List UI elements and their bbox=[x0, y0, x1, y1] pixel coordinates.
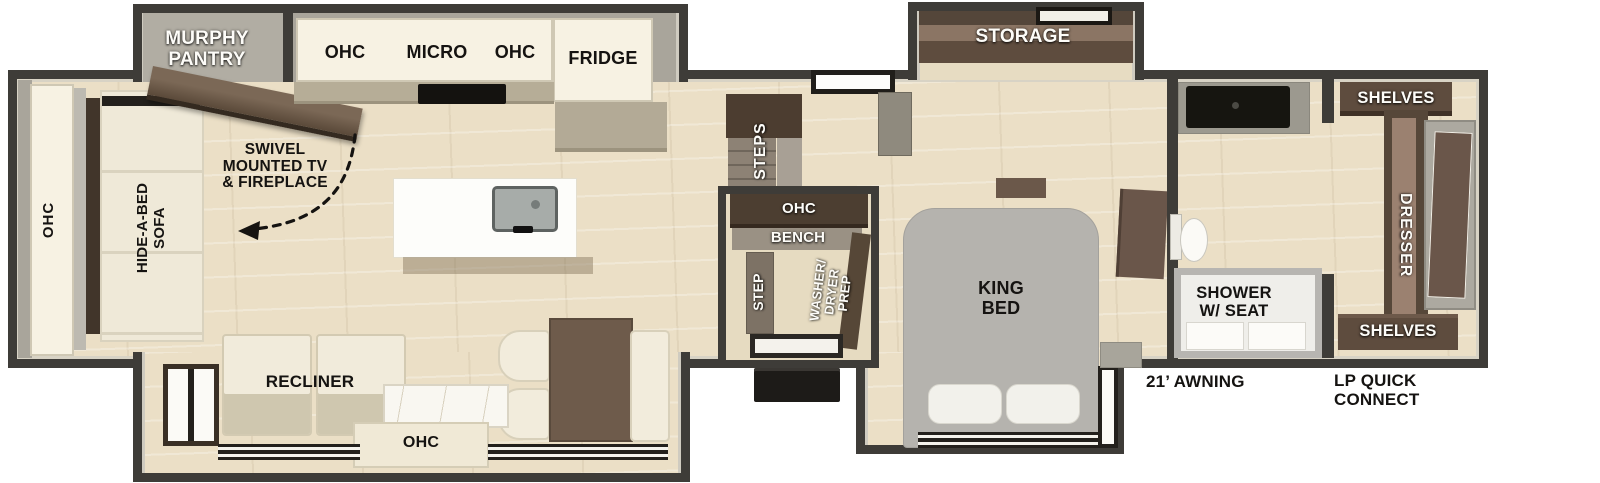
bottom-ohc-label: OHC bbox=[353, 434, 489, 452]
step-label: STEP bbox=[751, 257, 769, 327]
steps-label: STEPS bbox=[752, 116, 772, 186]
lp-quick-connect-label: LP QUICK CONNECT bbox=[1334, 372, 1454, 409]
bedroom-wardrobe bbox=[1116, 189, 1169, 279]
fridge-label: FRIDGE bbox=[556, 48, 650, 68]
bath-front-wall-bottom bbox=[1322, 274, 1334, 358]
island-shadow bbox=[403, 257, 593, 274]
utility-ohc-label: OHC bbox=[764, 201, 834, 218]
slideout-window-band bbox=[488, 444, 668, 460]
roof-vent bbox=[1036, 7, 1112, 25]
dresser-label: DRESSER bbox=[1392, 140, 1418, 330]
headboard-shelf bbox=[996, 178, 1046, 198]
bath-front-wall-top bbox=[1322, 79, 1334, 123]
king-slideout-window-band bbox=[918, 432, 1102, 448]
awning-label: 21’ AWNING bbox=[1146, 372, 1286, 391]
pillow bbox=[928, 384, 1002, 424]
shelves-bottom-label: SHELVES bbox=[1338, 322, 1458, 340]
fridge-base bbox=[555, 102, 667, 152]
dinette-chair bbox=[498, 330, 550, 382]
king-bed-label: KING BED bbox=[941, 278, 1061, 318]
toilet bbox=[1180, 218, 1208, 262]
pillow bbox=[1006, 384, 1080, 424]
slideout-left-window bbox=[163, 364, 219, 446]
bedroom-cabinet bbox=[878, 92, 912, 156]
wardrobe-mirror bbox=[1427, 131, 1472, 298]
murphy-pantry-label: MURPHY PANTRY bbox=[142, 28, 272, 71]
rear-shelf-strip bbox=[74, 88, 86, 350]
dinette-bench bbox=[630, 330, 670, 442]
sink-drain bbox=[531, 200, 540, 209]
kitchen-ohc-left-label: OHC bbox=[310, 42, 380, 62]
steps-side bbox=[777, 138, 802, 192]
shelves-top-label: SHELVES bbox=[1340, 89, 1452, 107]
micro-label: MICRO bbox=[395, 42, 479, 62]
top-wall-window bbox=[811, 70, 895, 94]
hide-a-bed-sofa-label: HIDE-A-BED SOFA bbox=[135, 148, 179, 308]
storage-label: STORAGE bbox=[953, 26, 1093, 47]
shower-seat bbox=[1248, 322, 1306, 350]
kitchen-ohc-right-label: OHC bbox=[480, 42, 550, 62]
recliner-label: RECLINER bbox=[240, 372, 380, 391]
entry-step bbox=[754, 368, 840, 402]
shower-seat bbox=[1186, 322, 1244, 350]
sink-faucet bbox=[513, 226, 533, 233]
slideout-window-band bbox=[218, 444, 360, 460]
vanity-faucet bbox=[1232, 102, 1239, 109]
pantry-divider-wall bbox=[283, 10, 293, 82]
king-slideout-side-window bbox=[1098, 366, 1118, 448]
cooktop bbox=[418, 84, 506, 104]
shower-label: SHOWER W/ SEAT bbox=[1176, 284, 1292, 320]
nightstand bbox=[1100, 342, 1142, 368]
rv-floorplan: MURPHY PANTRY OHC MICRO OHC FRIDGE STORA… bbox=[0, 0, 1600, 483]
swivel-tv-label: SWIVEL MOUNTED TV & FIREPLACE bbox=[210, 142, 340, 192]
dinette-table bbox=[549, 318, 633, 442]
rear-ohc-label: OHC bbox=[41, 150, 63, 290]
